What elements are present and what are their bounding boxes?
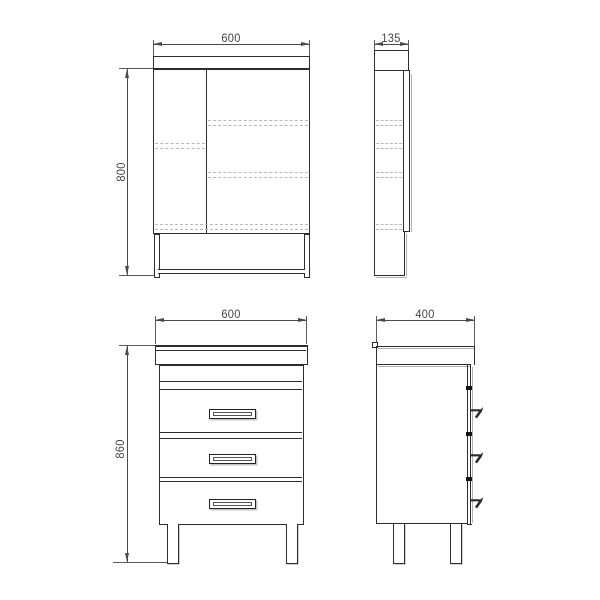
carcass-top-line (160, 381, 302, 382)
washbasin-rim-line (156, 350, 306, 351)
arrowhead-up-icon (125, 69, 129, 78)
hidden-shelf-line (376, 143, 402, 144)
hidden-shelf-line (376, 125, 402, 126)
body-back-edge (376, 347, 377, 524)
hidden-shelf-line (208, 177, 308, 178)
mirror-top-cornice (153, 56, 310, 69)
vanity-front-left-leg (167, 524, 179, 564)
drawer-gap-mark (466, 432, 472, 436)
body-bottom-shadow (376, 277, 407, 279)
extension-line (474, 316, 475, 347)
hidden-bottom-panel-line (155, 229, 308, 230)
drawer-1-bottom-line (160, 432, 302, 433)
basin-front-edge (474, 346, 475, 365)
vanity-side-back-leg (450, 524, 462, 564)
extension-line (155, 316, 156, 344)
drawer-gap-mark (466, 386, 472, 390)
dimension-label: 600 (211, 31, 251, 45)
extension-line (376, 316, 377, 343)
mirror-side-body (374, 70, 405, 276)
drawer-3-handle (209, 499, 256, 509)
extension-line (119, 275, 159, 276)
door-edge-shadow (411, 74, 413, 232)
body-edge-shadow (406, 234, 408, 276)
drawer-3-top-line (160, 481, 302, 482)
drawer-handle-inner-line (213, 412, 252, 416)
dimension-label: 600 (211, 307, 251, 321)
arrowhead-left-icon (153, 42, 162, 46)
extension-line (119, 68, 153, 69)
arrowhead-left-icon (155, 318, 164, 322)
hidden-shelf-line (208, 172, 308, 173)
basin-top-shadow (378, 348, 474, 349)
drawer-2-handle-profile (470, 451, 485, 465)
arrowhead-left-icon (376, 318, 385, 322)
drawer-1-handle-profile (470, 406, 485, 420)
washbasin (155, 345, 308, 365)
extension-line (309, 40, 310, 56)
dimension-label: 800 (114, 152, 128, 192)
open-shelf-board (158, 269, 305, 274)
drawer-1-top-line (160, 389, 302, 390)
hidden-bottom-panel-line (376, 224, 402, 225)
arrowhead-down-icon (125, 553, 129, 562)
dimension-label: 860 (113, 429, 127, 469)
basin-bottom-shadow (378, 366, 471, 367)
mirror-doors-body (153, 69, 310, 234)
drawer-handle-inner-line (213, 502, 252, 506)
extension-line (113, 562, 167, 563)
drawer-handle-inner-line (213, 457, 252, 461)
hidden-shelf-line (376, 177, 402, 178)
dimension-label: 400 (405, 307, 445, 321)
door-divider-line (206, 70, 207, 233)
hidden-shelf-line (376, 172, 402, 173)
hidden-bottom-panel-line (376, 229, 402, 230)
mirror-side-cornice (374, 50, 409, 71)
hidden-shelf-line (208, 120, 308, 121)
drawer-2-top-line (160, 438, 302, 439)
drawer-gap-mark (466, 477, 472, 481)
drawer-front-bottom (467, 524, 472, 525)
hidden-shelf-line (376, 148, 402, 149)
vanity-front-right-leg (286, 524, 298, 564)
dimension-label: 135 (371, 31, 411, 45)
hidden-shelf-line (155, 143, 205, 144)
extension-line (119, 345, 155, 346)
technical-drawing-canvas: 600 800 (0, 0, 600, 600)
drawer-1-handle (209, 409, 256, 419)
hidden-bottom-panel-line (155, 224, 308, 225)
hidden-shelf-line (155, 148, 205, 149)
mirror-side-door-panel (403, 70, 410, 232)
arrowhead-up-icon (125, 346, 129, 355)
dimension-line (127, 346, 128, 562)
drawer-2-handle (209, 454, 256, 464)
drawer-2-bottom-line (160, 477, 302, 478)
hidden-shelf-line (376, 120, 402, 121)
vanity-side-front-leg (393, 524, 405, 564)
arrowhead-down-icon (125, 266, 129, 275)
drawer-3-handle-profile (470, 496, 485, 510)
extension-line (153, 40, 154, 56)
hidden-shelf-line (208, 125, 308, 126)
extension-line (306, 316, 307, 344)
